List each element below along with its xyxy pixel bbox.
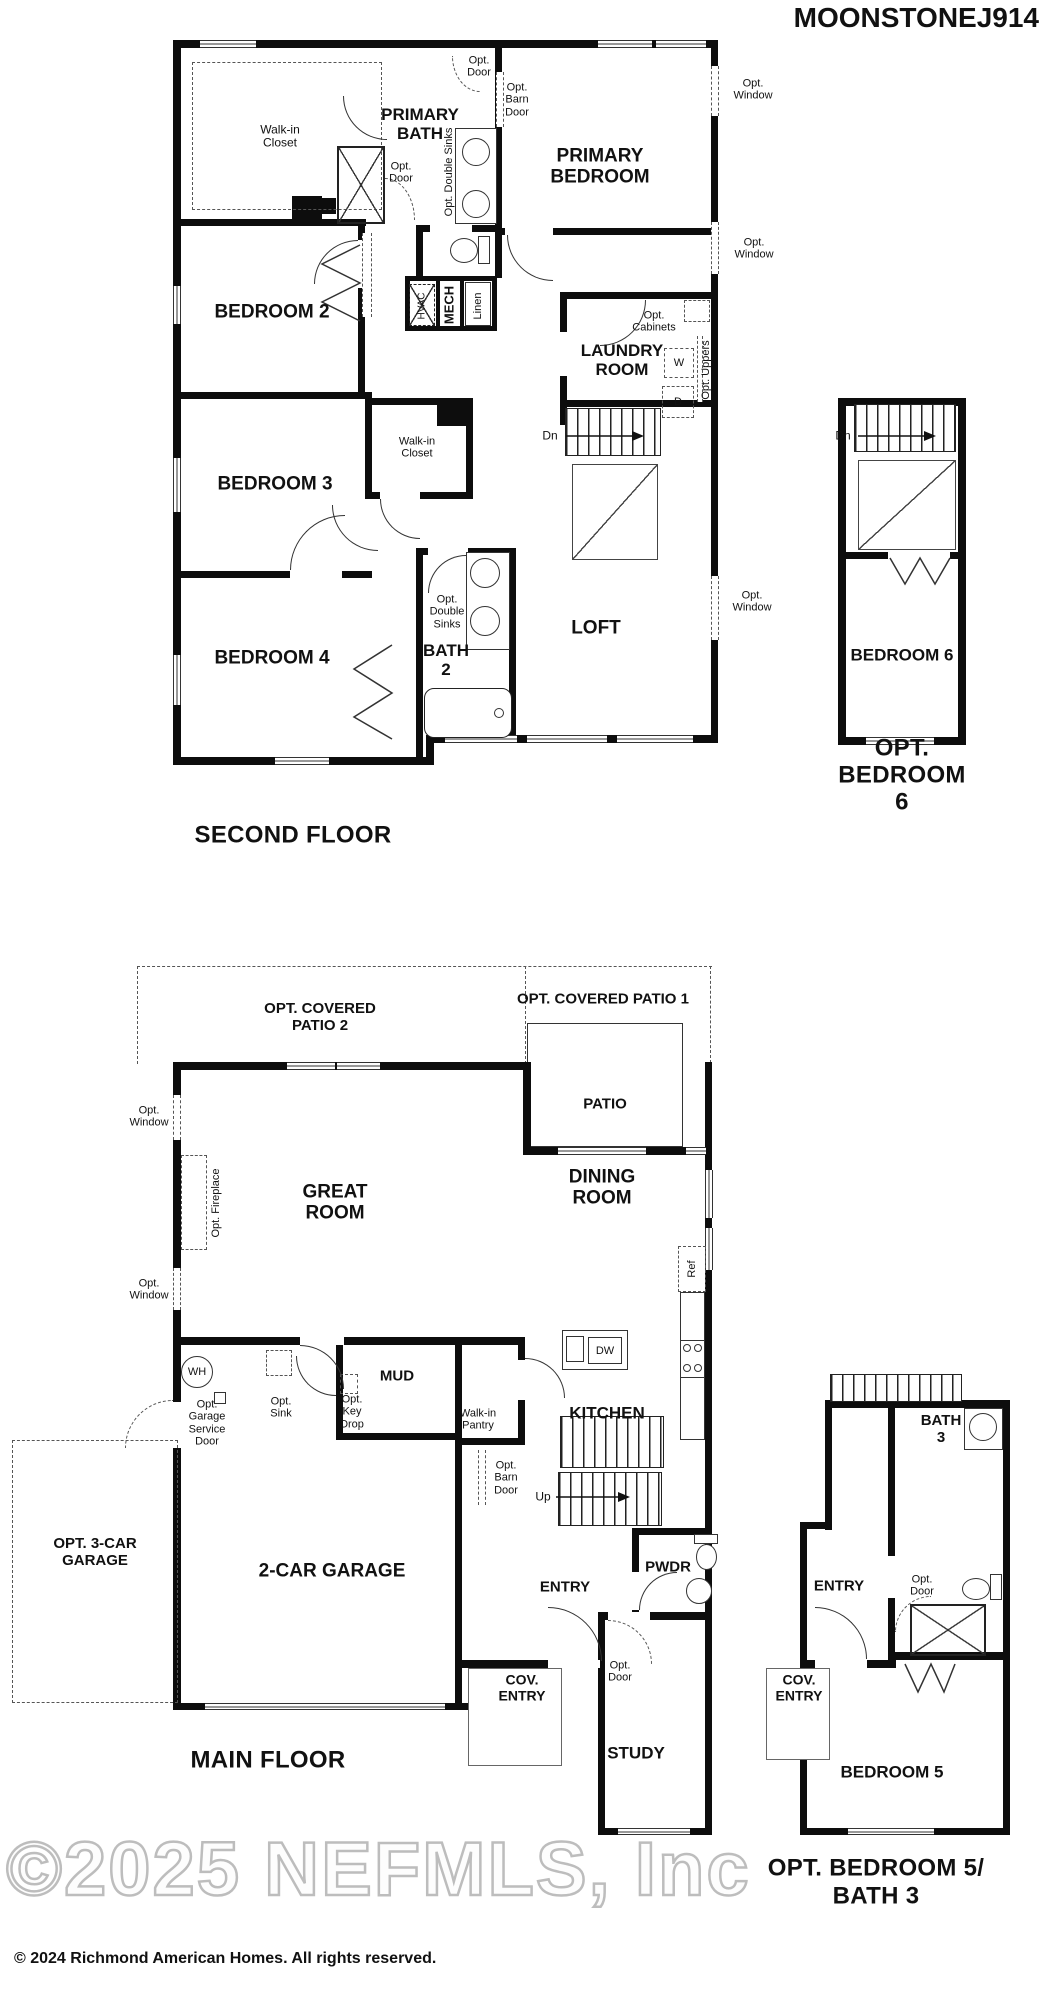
opt-window xyxy=(711,66,719,116)
annotation-hvac: HVAC xyxy=(416,292,427,319)
opt-covered-patio-outline xyxy=(137,966,712,967)
room-label-study: STUDY xyxy=(607,1743,665,1762)
door-opening xyxy=(608,1612,650,1620)
toilet-tank xyxy=(990,1574,1002,1600)
door-opening xyxy=(518,1360,525,1400)
annotation-opt-window: Opt. Window xyxy=(732,590,771,615)
bifold-door-icon xyxy=(888,556,952,588)
room-label-bedroom6: BEDROOM 6 xyxy=(851,645,954,664)
door-opening xyxy=(430,225,472,232)
wall xyxy=(460,276,464,330)
annotation-opt-door: Opt. Door xyxy=(389,161,413,186)
wall xyxy=(455,1345,462,1710)
wall xyxy=(888,1408,895,1660)
door-opening xyxy=(290,571,342,578)
opt-window xyxy=(711,222,719,274)
annotation-opt-double-sinks: Opt. Double Sinks xyxy=(430,594,465,631)
door-opening xyxy=(815,1660,867,1668)
room-label-2car-garage: 2-CAR GARAGE xyxy=(259,1560,406,1581)
patio-outline xyxy=(527,1023,683,1147)
fixture-label-dryer: D xyxy=(674,396,682,408)
window xyxy=(598,40,652,48)
burner xyxy=(683,1344,691,1352)
wall xyxy=(365,398,372,499)
window xyxy=(200,40,256,48)
opt-cabinets-outline xyxy=(684,300,710,322)
room-label-bath3: BATH 3 xyxy=(921,1413,962,1447)
door-arc xyxy=(525,1358,565,1398)
wall xyxy=(492,276,497,330)
room-label-mud: MUD xyxy=(380,1369,414,1386)
room-label-patio: PATIO xyxy=(583,1097,627,1114)
room-label-bedroom4: BEDROOM 4 xyxy=(214,647,329,668)
burner xyxy=(694,1364,702,1372)
toilet-bowl xyxy=(962,1578,990,1600)
window xyxy=(275,757,329,765)
room-label-kitchen: KITCHEN xyxy=(569,1403,645,1422)
room-label-cov-entry: COV. ENTRY xyxy=(499,1672,546,1703)
tub-drain xyxy=(494,708,504,718)
toilet-tank xyxy=(694,1534,718,1544)
room-label-laundry: LAUNDRY ROOM xyxy=(581,341,663,379)
burner xyxy=(694,1344,702,1352)
stairs-label-dn: Dn xyxy=(835,429,850,442)
annotation-opt-window: Opt. Window xyxy=(733,78,772,103)
watermark-text: ©2025 NEFMLS, Inc xyxy=(6,1826,751,1913)
annotation-opt-door: Opt. Door xyxy=(910,1574,934,1599)
room-label-bedroom5: BEDROOM 5 xyxy=(841,1762,944,1781)
annotation-opt-door: Opt. Door xyxy=(608,1660,632,1685)
hall-dashed-line xyxy=(362,233,372,317)
plan-title: MOONSTONEJ914 xyxy=(789,2,1039,34)
room-label-loft: LOFT xyxy=(571,617,621,638)
shower xyxy=(337,146,385,224)
room-label-great-room: GREAT ROOM xyxy=(302,1182,367,1225)
door-arc xyxy=(296,1356,336,1396)
sink xyxy=(969,1413,997,1441)
annotation-opt-sink: Opt. Sink xyxy=(270,1396,291,1421)
caption-second-floor: SECOND FLOOR xyxy=(195,823,392,850)
opt-barn-door-track xyxy=(496,72,504,127)
opt-fireplace-outline xyxy=(181,1155,207,1250)
burner xyxy=(683,1364,691,1372)
floorplan-page: MOONSTONEJ914 Walk-in Closet PRIMARY BAT… xyxy=(0,0,1041,2000)
room-label-walk-in-pantry: Walk-in Pantry xyxy=(460,1408,496,1433)
bifold-door-icon xyxy=(903,1662,957,1696)
annotation-opt-window: Opt. Window xyxy=(129,1105,168,1130)
room-label-opt-covered-patio2: OPT. COVERED PATIO 2 xyxy=(264,1001,376,1035)
window xyxy=(686,1147,706,1155)
wall xyxy=(437,400,467,426)
door-opening xyxy=(428,548,468,555)
window xyxy=(337,1062,380,1070)
opt-3car-garage-outline xyxy=(12,1440,178,1703)
door-opening xyxy=(300,1337,344,1345)
garage-door xyxy=(205,1703,445,1710)
stairwell-void xyxy=(858,460,956,550)
wall xyxy=(416,548,423,763)
sink xyxy=(686,1578,712,1604)
annotation-opt-window: Opt. Window xyxy=(129,1278,168,1303)
wall xyxy=(173,571,372,578)
annotation-opt-window: Opt. Window xyxy=(734,237,773,262)
wall xyxy=(462,1438,525,1445)
door-arc xyxy=(507,235,553,281)
sliding-door xyxy=(558,1147,646,1155)
room-label-bath2: BATH 2 xyxy=(423,641,469,679)
room-label-entry: ENTRY xyxy=(540,1580,590,1597)
sink xyxy=(470,606,500,636)
wall xyxy=(838,398,846,745)
door-opening xyxy=(505,228,553,235)
wall xyxy=(523,1062,531,1155)
wall xyxy=(560,292,718,299)
door-opening xyxy=(560,332,567,376)
room-label-bedroom2: BEDROOM 2 xyxy=(214,301,329,322)
annotation-opt-barn-door: Opt. Barn Door xyxy=(505,82,529,119)
sink xyxy=(462,190,490,218)
window xyxy=(173,286,181,324)
room-label-mech: MECH xyxy=(443,286,458,324)
door-opening xyxy=(632,1572,639,1610)
opt-barn-door-track xyxy=(478,1450,486,1505)
wall xyxy=(173,392,372,399)
toilet-bowl xyxy=(696,1544,717,1570)
annotation-opt-door: Opt. Door xyxy=(467,55,491,80)
caption-opt-bedroom5: OPT. BEDROOM 5/ xyxy=(768,1856,985,1883)
window xyxy=(705,1170,713,1218)
room-label-bedroom3: BEDROOM 3 xyxy=(217,473,332,494)
wall xyxy=(405,326,497,331)
annotation-opt-double-sinks: Opt. Double Sinks xyxy=(443,128,455,217)
door-opening xyxy=(380,492,420,499)
window xyxy=(656,40,706,48)
sink xyxy=(470,558,500,588)
door-arc xyxy=(380,499,420,539)
room-label-opt-covered-patio1: OPT. COVERED PATIO 1 xyxy=(517,992,689,1009)
annotation-opt-key-drop: Opt. Key Drop xyxy=(340,1394,364,1431)
staircase xyxy=(830,1374,962,1402)
annotation-opt-cabinets: Opt. Cabinets xyxy=(632,310,675,335)
stairs-label-dn: Dn xyxy=(542,429,557,442)
caption-opt-bedroom5-bath3: BATH 3 xyxy=(833,1884,920,1911)
window xyxy=(848,1828,934,1835)
door-arc xyxy=(815,1607,867,1659)
window xyxy=(617,735,693,743)
wall xyxy=(1003,1400,1010,1835)
fixture-label-dw: DW xyxy=(596,1345,614,1357)
opt-door-arc xyxy=(895,1596,931,1632)
door-arc xyxy=(548,1607,602,1661)
room-label-pwdr: PWDR xyxy=(645,1560,691,1577)
copyright-text: © 2024 Richmond American Homes. All righ… xyxy=(14,1950,436,1968)
stairs-arrow xyxy=(556,1491,630,1503)
room-label-opt-3car-garage: OPT. 3-CAR GARAGE xyxy=(53,1536,136,1570)
window xyxy=(527,735,607,743)
opt-window xyxy=(173,1095,181,1140)
window xyxy=(173,655,181,705)
stairs-label-up: Up xyxy=(535,1490,550,1503)
wall xyxy=(336,1433,462,1440)
stairwell-void xyxy=(572,464,658,560)
wall xyxy=(466,398,473,499)
room-label-linen: Linen xyxy=(472,293,484,320)
annotation-opt-uppers: Opt. Uppers xyxy=(700,340,712,399)
annotation-opt-fireplace: Opt. Fireplace xyxy=(210,1168,222,1237)
wall xyxy=(436,276,440,330)
wall xyxy=(825,1400,832,1530)
room-label-walk-in-closet2: Walk-in Closet xyxy=(399,436,435,461)
wall xyxy=(405,276,497,281)
staircase xyxy=(560,1416,664,1468)
opt-covered-patio-outline xyxy=(137,966,138,1064)
annotation-opt-barn-door: Opt. Barn Door xyxy=(494,1460,518,1497)
wall xyxy=(560,400,718,407)
fixture-label-washer: W xyxy=(674,357,684,369)
toilet-tank xyxy=(478,236,490,264)
room-label-primary-bedroom: PRIMARY BEDROOM xyxy=(550,146,649,189)
window xyxy=(173,458,181,512)
opt-door-arc xyxy=(125,1400,173,1448)
opt-window xyxy=(711,576,719,640)
room-label-cov-entry2: COV. ENTRY xyxy=(776,1672,823,1703)
door-opening xyxy=(548,1660,600,1668)
island-sink xyxy=(566,1336,584,1362)
room-label-dining: DINING ROOM xyxy=(569,1167,636,1210)
door-arc xyxy=(639,1572,677,1610)
caption-main-floor: MAIN FLOOR xyxy=(191,1748,346,1775)
wall xyxy=(958,398,966,745)
opt-window xyxy=(173,1268,181,1310)
window xyxy=(705,1228,713,1270)
caption-opt-bedroom6: OPT. BEDROOM 6 xyxy=(833,736,972,817)
wall xyxy=(181,1337,525,1345)
sink xyxy=(462,138,490,166)
fixture-label-wh: WH xyxy=(188,1366,206,1378)
staircase xyxy=(854,404,956,452)
door-opening xyxy=(888,1556,895,1598)
annotation-opt-garage-service-door: Opt. Garage Service Door xyxy=(189,1398,226,1447)
bifold-door-icon xyxy=(350,643,394,741)
opt-sink-box xyxy=(266,1350,292,1376)
opt-door-arc xyxy=(608,1620,652,1664)
room-label-walk-in-closet: Walk-in Closet xyxy=(260,124,300,151)
toilet-bowl xyxy=(450,238,478,263)
opt-covered-patio-divider xyxy=(525,966,526,1064)
stairs-arrow xyxy=(858,430,936,442)
fixture-label-ref: Ref xyxy=(686,1260,698,1277)
wall xyxy=(416,225,423,278)
stairs-arrow xyxy=(566,430,644,442)
door-arc xyxy=(428,555,466,593)
wall xyxy=(800,1522,832,1529)
window xyxy=(287,1062,335,1070)
room-label-entry2: ENTRY xyxy=(814,1579,864,1596)
